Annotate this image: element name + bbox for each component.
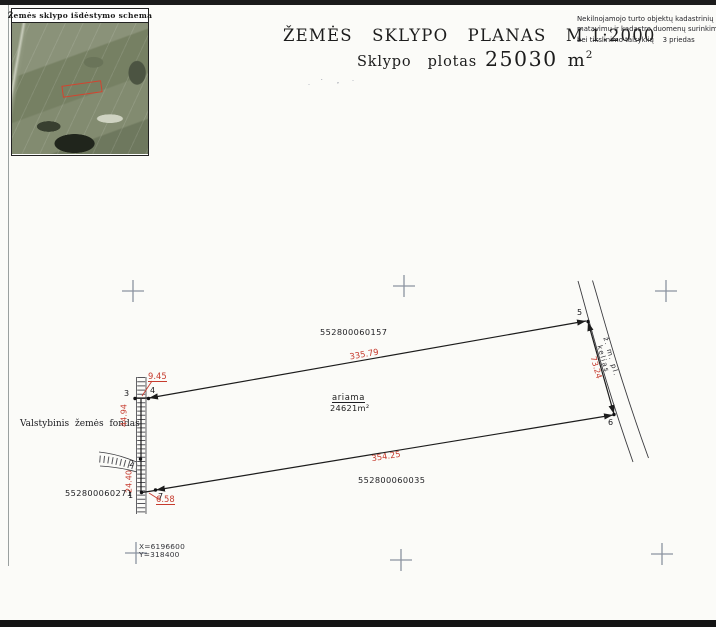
grid-cross xyxy=(122,280,144,302)
dimension-left-upper: 44.94 xyxy=(120,400,129,432)
land-use-area: 24621m² xyxy=(330,403,369,413)
land-plot-plan-document: Žemės sklypo išdėstymo schema ŽEMĖS SKLY… xyxy=(0,0,716,627)
vertex-label-2: 2 xyxy=(129,459,134,468)
grid-cross xyxy=(651,543,673,565)
vertex-label-5: 5 xyxy=(577,308,582,317)
vertex-label-7: 7 xyxy=(158,492,163,501)
vertex-label-3: 3 xyxy=(124,389,129,398)
vertex-label-4: 4 xyxy=(150,386,155,395)
grid-cross xyxy=(393,275,415,297)
dimension-top-left: 9.45 xyxy=(148,371,167,382)
grid-cross xyxy=(390,549,412,571)
south-parcel-number: 552800060035 xyxy=(358,475,425,485)
plan-drawing xyxy=(0,0,716,627)
grid-crosses xyxy=(122,275,677,571)
vertex-label-6: 6 xyxy=(608,418,613,427)
west-parcel-number: 552800060271 xyxy=(65,488,132,498)
land-use-label: ariama xyxy=(332,392,365,403)
grid-coordinate-y: Y=318400 xyxy=(139,550,180,559)
vertex-label-1: 1 xyxy=(128,491,133,500)
grid-cross xyxy=(655,280,677,302)
north-parcel-number: 552800060157 xyxy=(320,327,387,337)
